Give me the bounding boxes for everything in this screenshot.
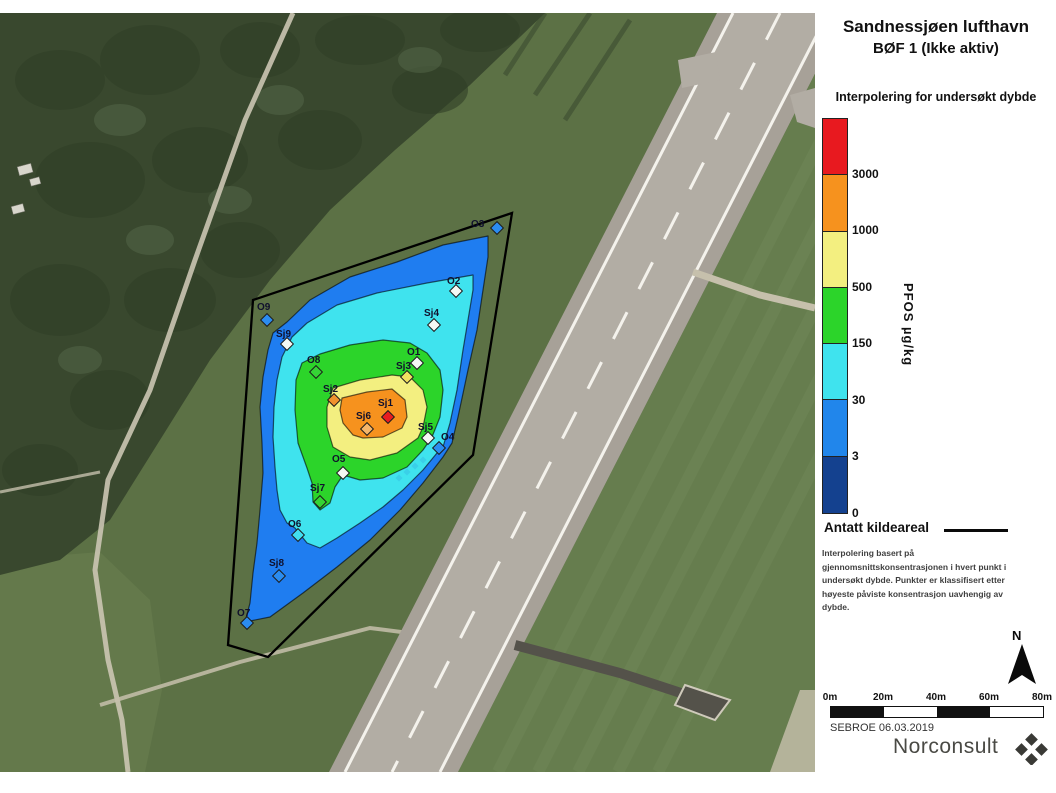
sample-point-label-Sj8: Sj8 [269,558,284,569]
scale-bar-segment [884,707,937,717]
source-area-label: Antatt kildeareal [824,520,929,535]
norconsult-logo-text: Norconsult [893,735,998,759]
legend-color-segment [823,400,847,456]
sample-point-label-O6: O6 [288,519,302,530]
scale-bar-label: 0m [818,692,842,703]
map-title-line1: Sandnessjøen lufthavn [816,16,1056,38]
sample-point-label-Sj4: Sj4 [424,308,439,319]
sample-point-label-O4: O4 [441,432,455,443]
credit-text: SEBROE 06.03.2019 [830,722,934,734]
legend-tick-label: 3000 [852,167,879,181]
sample-point-label-O5: O5 [332,454,346,465]
figure-canvas: O3O2Sj4O9Sj9O8O1Sj3Sj2Sj1Sj6Sj5O4O5Sj7O6… [0,0,1056,793]
scale-bar-segment [990,707,1043,717]
legend-color-segment [823,232,847,288]
scale-bar-labels: 0m20m40m60m80m [818,692,1056,704]
sample-point-label-Sj6: Sj6 [356,411,371,422]
sample-point-label-O1: O1 [407,347,421,358]
legend-color-segment [823,288,847,344]
legend-color-segment [823,119,847,175]
legend-tick-label: 3 [852,449,859,463]
method-note: Interpolering basert på gjennomsnittskon… [822,547,1018,615]
legend-color-segment [823,175,847,231]
contour-1000-3000 [340,389,407,438]
legend-color-segment [823,457,847,513]
sample-point-label-O9: O9 [257,302,271,313]
legend-tick-label: 0 [852,506,859,520]
map-title: Sandnessjøen lufthavn BØF 1 (Ikke aktiv) [816,16,1056,60]
scale-bar-label: 20m [871,692,895,703]
scale-bar-label: 40m [924,692,948,703]
legend-title: Interpolering for undersøkt dybde [814,90,1056,104]
sample-point-label-O3: O3 [471,219,485,230]
legend-tick-label: 500 [852,280,872,294]
sample-point-label-Sj3: Sj3 [396,361,411,372]
legend-tick-label: 150 [852,336,872,350]
sample-point-label-Sj2: Sj2 [323,384,338,395]
legend-color-segment [823,344,847,400]
north-arrow-icon [1004,642,1040,686]
scale-bar-segment [831,707,884,717]
sample-point-label-O8: O8 [307,355,321,366]
sample-point-label-Sj7: Sj7 [310,483,325,494]
norconsult-logo-icon [1014,733,1048,765]
sample-point-label-Sj5: Sj5 [418,422,433,433]
scale-bar-label: 60m [977,692,1001,703]
sample-point-label-Sj1: Sj1 [378,398,393,409]
legend-color-bar [822,118,848,514]
sample-point-label-O7: O7 [237,608,251,619]
sample-point-label-O2: O2 [447,276,461,287]
map-title-line2: BØF 1 (Ikke aktiv) [816,38,1056,60]
legend-tick-label: 1000 [852,223,879,237]
scale-bar-segment [937,707,990,717]
scale-bar-label: 80m [1030,692,1054,703]
legend-tick-labels: 300010005001503030 [852,118,902,518]
scale-bar [830,706,1044,718]
source-area-line-symbol [944,529,1008,532]
aerial-map: O3O2Sj4O9Sj9O8O1Sj3Sj2Sj1Sj6Sj5O4O5Sj7O6… [0,13,815,772]
north-label: N [1012,628,1021,643]
map-area: O3O2Sj4O9Sj9O8O1Sj3Sj2Sj1Sj6Sj5O4O5Sj7O6… [0,13,815,772]
legend-unit-label: PFOS µg/kg [901,283,916,443]
legend-tick-label: 30 [852,393,865,407]
sample-point-label-Sj9: Sj9 [276,329,291,340]
